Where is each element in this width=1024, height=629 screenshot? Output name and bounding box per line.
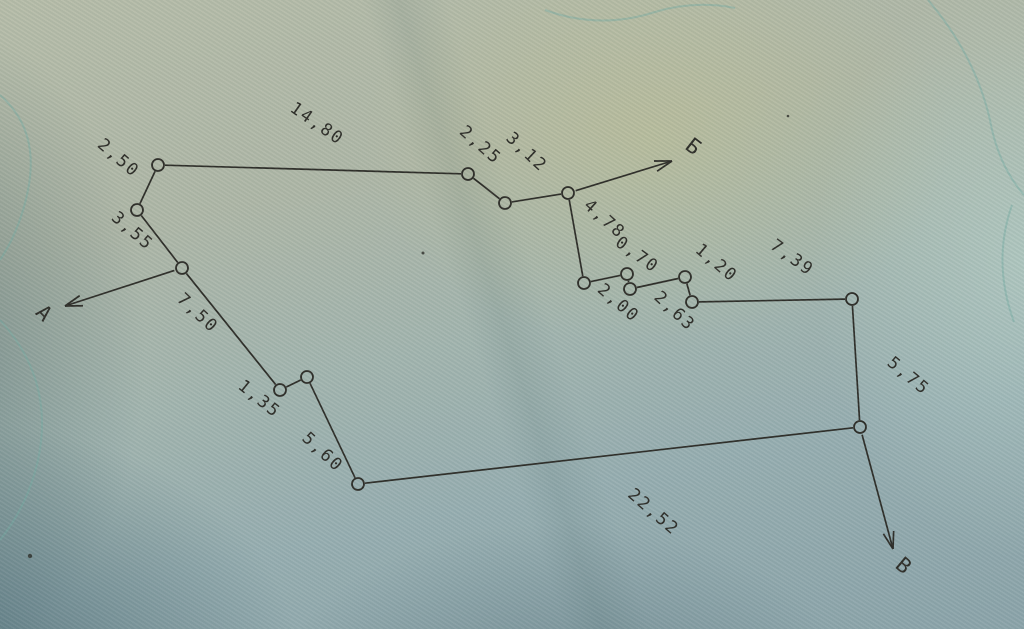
distance-label: 1,20 (691, 240, 741, 287)
station-marker (846, 293, 858, 305)
station-marker (854, 421, 866, 433)
reference-point-label: Б (681, 133, 706, 160)
traverse-leg (365, 428, 853, 483)
station-marker (462, 168, 474, 180)
distance-label: 2,50 (93, 135, 143, 182)
ink-speck (422, 252, 425, 255)
traverse-leg (637, 278, 678, 287)
station-marker (301, 371, 313, 383)
station-marker (176, 262, 188, 274)
traverse-leg (699, 299, 845, 302)
traverse-leg (140, 171, 155, 203)
station-marker (152, 159, 164, 171)
distance-label: 7,50 (173, 289, 222, 337)
map-contour-line (0, 320, 42, 540)
station-marker (352, 478, 364, 490)
distance-label: 5,75 (883, 353, 933, 400)
reference-point-label: А (31, 300, 57, 326)
traverse-leg (286, 380, 300, 387)
ink-speck (787, 115, 790, 118)
distance-label: 14,80 (286, 98, 348, 149)
station-marker (562, 187, 574, 199)
station-marker (131, 204, 143, 216)
distance-label: 5,60 (298, 428, 347, 476)
traverse-leg (474, 178, 500, 198)
distance-label: 3,12 (502, 128, 551, 176)
map-contour-line (1002, 205, 1014, 322)
reference-arrowhead-icon (893, 531, 894, 549)
map-contour-line (545, 5, 735, 21)
station-marker (621, 268, 633, 280)
station-marker (274, 384, 286, 396)
traverse-leg (852, 306, 859, 420)
distance-label: 7,39 (766, 235, 817, 280)
reference-arrow-shaft (862, 435, 893, 549)
traverse-diagram: 14,802,253,124,782,000,702,631,207,395,7… (0, 0, 1024, 629)
station-marker (679, 271, 691, 283)
distance-label: 2,25 (455, 122, 505, 169)
map-contour-line (0, 95, 31, 260)
survey-sketch-photo: 14,802,253,124,782,000,702,631,207,395,7… (0, 0, 1024, 629)
reference-arrow-shaft (65, 270, 174, 306)
distance-label: 1,35 (234, 376, 285, 422)
reference-arrow-shaft (576, 161, 672, 191)
traverse-leg (687, 284, 690, 296)
map-contour-line (928, 0, 1024, 195)
traverse-leg (165, 165, 461, 174)
station-marker (578, 277, 590, 289)
distance-label: 2,63 (650, 287, 699, 335)
distance-label: 0,70 (611, 232, 662, 277)
traverse-leg (512, 194, 561, 202)
distance-label: 22,52 (624, 485, 683, 540)
station-marker (686, 296, 698, 308)
station-marker (624, 283, 636, 295)
station-marker (499, 197, 511, 209)
reference-point-label: В (891, 552, 916, 579)
ink-speck (28, 554, 32, 558)
